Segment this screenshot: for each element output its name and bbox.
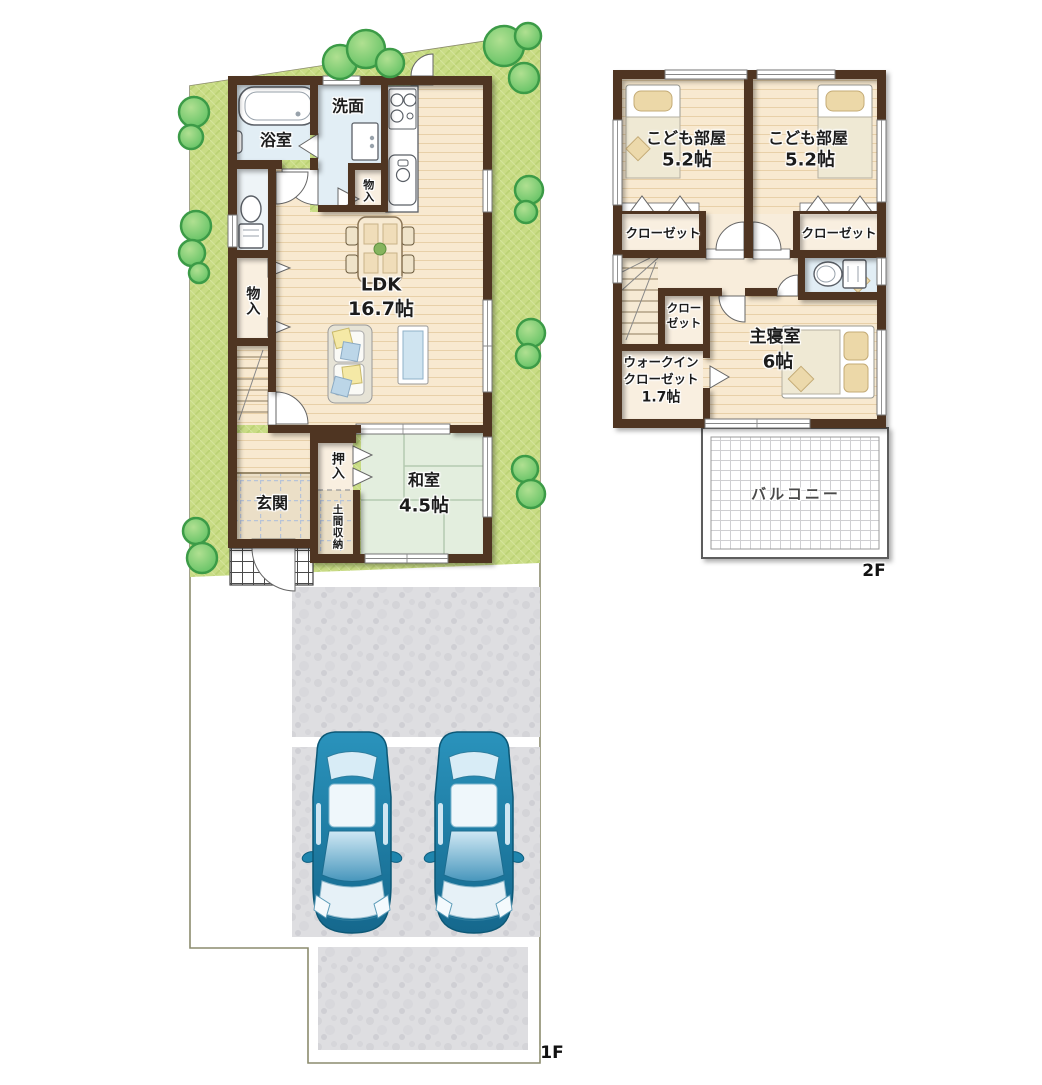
floorplan-canvas [0, 0, 1042, 1085]
label-bath: 浴室 [260, 133, 292, 150]
tree [512, 456, 538, 482]
label-washroom: 洗面 [332, 99, 364, 116]
label-kids1-name: こども部屋 [646, 131, 726, 148]
tree [517, 480, 545, 508]
label-doma: 土間収納 [331, 504, 342, 550]
tree [515, 176, 543, 204]
tree [517, 319, 545, 347]
label-kids2-name: こども部屋 [768, 131, 848, 148]
tree [515, 23, 541, 49]
floorplan-page: 浴室 洗面 物入 物入 LDK 16.7帖 押入 和室 4.5帖 玄関 土間収納… [0, 0, 1042, 1085]
label-kids2-size: 5.2帖 [785, 152, 835, 171]
label-oshiire: 押入 [329, 452, 343, 480]
label-washitsu-name: 和室 [408, 473, 440, 490]
sofa [328, 325, 372, 403]
label-kids1-size: 5.2帖 [662, 152, 712, 171]
label-balcony: バルコニー [751, 487, 841, 503]
label-master-name: 主寝室 [750, 329, 801, 347]
bathtub [239, 87, 317, 125]
label-floor-1f: 1F [540, 1045, 563, 1063]
tv-board [398, 326, 428, 384]
car [423, 732, 525, 933]
tree [187, 543, 217, 573]
label-ldk-size: 16.7帖 [348, 300, 414, 320]
tree [376, 49, 404, 77]
tree [516, 344, 540, 368]
label-storage-small: 物入 [362, 179, 374, 203]
label-storage-hall: 物入 [245, 286, 260, 316]
tree [515, 201, 537, 223]
label-genkan: 玄関 [256, 496, 288, 513]
tree [179, 125, 203, 149]
label-floor-2f: 2F [862, 563, 885, 581]
tree [189, 263, 209, 283]
cushion-blue [341, 342, 361, 362]
label-wic-size: 1.7帖 [642, 391, 681, 406]
label-master-size: 6帖 [763, 354, 794, 373]
tree [183, 518, 209, 544]
label-closet-left: クローゼット [625, 226, 700, 239]
table-plant [374, 243, 386, 255]
toilet-1f [241, 196, 261, 222]
label-wic-1: ウォークイン [623, 355, 698, 368]
label-closet-small-1: クロー [667, 302, 702, 314]
washbasin [352, 123, 378, 160]
room-washitsu-floor [361, 433, 483, 554]
label-washitsu-size: 4.5帖 [399, 498, 449, 517]
label-wic-2: クローゼット [623, 372, 698, 385]
car [301, 732, 403, 933]
label-ldk-name: LDK [361, 277, 401, 296]
hall-floor [230, 433, 310, 473]
tree [181, 211, 211, 241]
label-closet-right: クローゼット [801, 226, 876, 239]
tree [179, 97, 209, 127]
tree [509, 63, 539, 93]
label-closet-small-2: ゼット [667, 317, 702, 329]
